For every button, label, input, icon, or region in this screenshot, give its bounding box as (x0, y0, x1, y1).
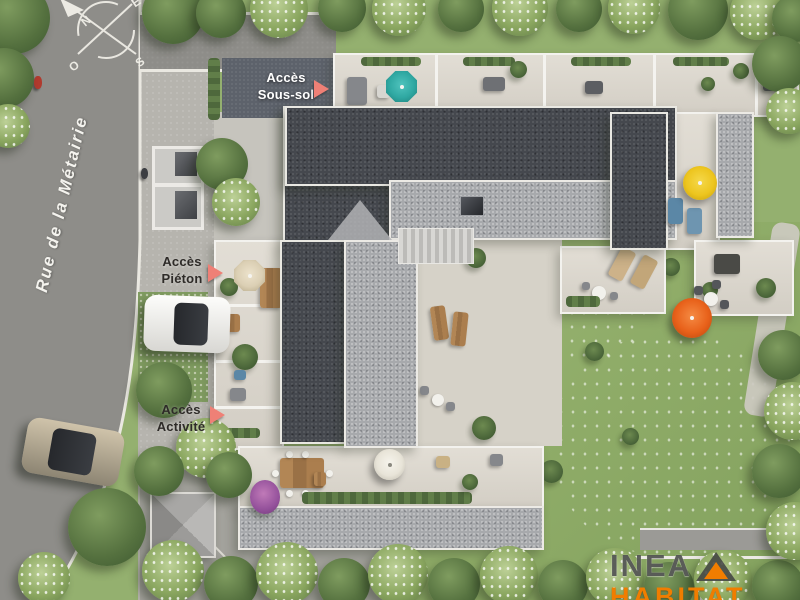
garden-furniture (714, 254, 740, 274)
tree (372, 0, 426, 36)
access-sous-sol-arrow-icon (314, 80, 329, 98)
tree (212, 178, 260, 226)
white-car (143, 295, 231, 354)
terrace-shrub (756, 278, 776, 298)
access-activite-label: Accès Activité (142, 401, 220, 435)
compass-south-label: S (133, 54, 148, 70)
tree (18, 552, 70, 600)
east-wing-roof-light (716, 112, 754, 238)
terrace-chair (610, 292, 618, 300)
blue-chair (234, 370, 246, 380)
tree (758, 330, 800, 380)
terrace-chairs (436, 456, 450, 468)
terrace-planter (463, 57, 515, 66)
wood-lounger (450, 311, 468, 346)
parasol-yellow (683, 166, 717, 200)
site-plan-scene: N E S O Rue de la Métairie Accès Sous-so… (0, 0, 800, 600)
pedestrian (34, 76, 42, 89)
west-wing-roof-light (344, 240, 418, 448)
compass-west-label: O (66, 58, 82, 75)
tree (766, 88, 800, 134)
terrace-shrub (701, 77, 715, 91)
blue-lounger (687, 208, 702, 234)
tree (480, 546, 538, 600)
compass-rose-icon: N E S O (48, 0, 188, 88)
sun-lounger (629, 254, 658, 290)
bistro-table (432, 394, 444, 406)
garden-chair (694, 286, 703, 295)
terrace-shrub (462, 474, 478, 490)
terrace-shrub (733, 63, 749, 79)
garden-chair (720, 300, 729, 309)
terrace-sofa (347, 77, 367, 105)
tree (134, 446, 184, 496)
east-ground-terrace (560, 246, 666, 314)
logo-house-triangle-fill (704, 562, 728, 579)
car-windshield (47, 427, 98, 476)
tree (256, 542, 318, 600)
parasol-white (374, 449, 405, 480)
logo-tagline: HABITAT (610, 584, 745, 600)
dining-chair (326, 470, 333, 477)
terrace-divider-wall (216, 406, 282, 409)
access-activite-arrow-icon (210, 406, 225, 424)
garden-chair (712, 280, 721, 289)
access-label-line: Accès (142, 401, 220, 418)
tree (368, 544, 428, 600)
parasol-pole (388, 463, 392, 467)
logo-house-triangle-icon (696, 552, 736, 581)
tree (668, 0, 728, 40)
terrace-chair (314, 472, 326, 486)
terrace-lounge-set (585, 81, 603, 94)
terrace-planter (361, 57, 421, 66)
entrance-canopy (398, 228, 474, 264)
tree (142, 540, 204, 600)
utility-box-lid (175, 152, 197, 176)
terrace-shrub (510, 61, 527, 78)
terrace-chairs (490, 454, 503, 466)
purple-flowering-bush (250, 480, 280, 514)
developer-logo: INEA HABITAT (610, 550, 745, 600)
terrace-chair (582, 282, 590, 290)
terrace-planter (302, 492, 472, 504)
utility-box-lid (175, 191, 197, 219)
tree (752, 444, 800, 498)
courtyard-shrub (472, 416, 496, 440)
lawn-shrub (622, 428, 639, 445)
lawn-shrub (585, 342, 604, 361)
parasol-pole (690, 316, 694, 320)
logo-name: INEA (610, 550, 692, 581)
terrace-chairs (230, 388, 246, 401)
west-wing-roof-dark (280, 240, 348, 444)
access-pieton-arrow-icon (208, 264, 223, 282)
roof-access-skylight (460, 196, 484, 216)
bistro-chair (446, 402, 455, 411)
car-windshield (173, 303, 208, 346)
ramp-hedge (208, 58, 220, 120)
bistro-chair (420, 386, 429, 395)
compass-north-label: N (78, 13, 94, 29)
tree (438, 0, 484, 32)
dining-chair (286, 451, 293, 458)
parasol-pole (698, 181, 702, 185)
tree (752, 36, 800, 92)
parasol-pole (400, 85, 404, 89)
parasol-orange (672, 298, 712, 338)
roof-hip (328, 200, 392, 240)
blue-lounger (668, 198, 683, 224)
dining-chair (286, 490, 293, 497)
access-label-line: Activité (142, 418, 220, 435)
terrace-planter (571, 57, 631, 66)
terrace-planter (673, 57, 729, 66)
parasol-pole (248, 274, 252, 278)
tree (556, 0, 602, 32)
dining-chair (302, 451, 309, 458)
tree (206, 452, 252, 498)
terrace-tree (232, 344, 258, 370)
utility-box (152, 184, 204, 230)
east-wing-roof-dark (610, 112, 668, 250)
tree (608, 0, 660, 34)
tree (492, 0, 548, 36)
terrace-planter (566, 296, 600, 307)
terrace-lounge-set (483, 77, 505, 91)
dining-chair (272, 470, 279, 477)
tree (68, 488, 146, 566)
pedestrian (141, 168, 148, 179)
wood-lounger (430, 305, 450, 341)
courtyard (414, 236, 562, 446)
